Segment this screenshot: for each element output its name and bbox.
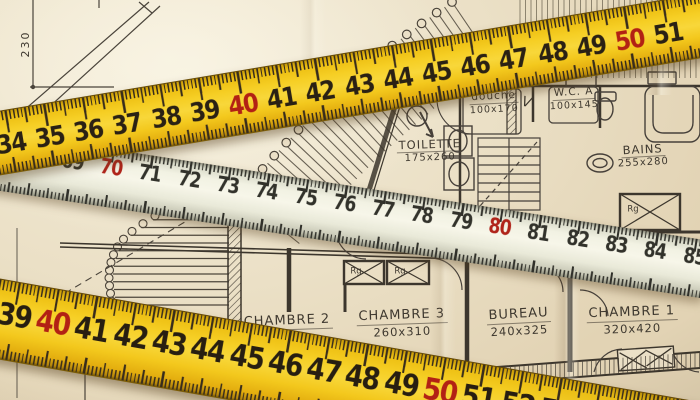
plan-line (128, 227, 136, 235)
plan-line (107, 289, 115, 297)
ruler-number-35: 35 (33, 121, 67, 155)
radiator-label: Rg (350, 268, 361, 277)
room-label-chambre3: CHAMBRE 3 260x310 (356, 307, 447, 339)
ruler-number-37: 37 (110, 108, 144, 142)
plan-line (432, 8, 441, 17)
ruler-number-38: 38 (149, 101, 183, 135)
mini-stair (478, 138, 540, 210)
ruler-number-84: 84 (642, 237, 668, 264)
plan-line (110, 251, 118, 259)
ruler-number-51: 51 (652, 17, 686, 51)
ruler-number-42: 42 (110, 317, 150, 357)
ruler-number-50: 50 (613, 23, 647, 57)
ruler-number-74: 74 (254, 178, 280, 205)
ruler-number-40: 40 (226, 88, 260, 122)
ruler-number-77: 77 (370, 195, 396, 222)
radiator-label: Rg (627, 206, 638, 215)
plan-line (417, 19, 426, 28)
window-symbol (617, 346, 674, 371)
room-label-toilette: TOILETTE 175x260 (396, 137, 463, 165)
ruler-number-41: 41 (265, 82, 299, 116)
plan-line (282, 138, 291, 147)
room-label-bureau: BUREAU 240x325 (486, 306, 552, 338)
ruler-number-46: 46 (265, 344, 305, 384)
plan-line (106, 282, 114, 290)
plan-line (315, 113, 368, 167)
ruler-number-79: 79 (448, 207, 474, 234)
ruler-number-39: 39 (188, 95, 222, 129)
room-name: CHAMBRE 3 (356, 307, 447, 326)
plan-line (448, 0, 457, 6)
plan-line (107, 258, 115, 266)
ruler-number-76: 76 (332, 190, 358, 217)
ruler-number-36: 36 (72, 114, 106, 148)
ruler-number-48: 48 (536, 36, 570, 70)
room-name: CHAMBRE 1 (586, 304, 677, 323)
ruler-number-44: 44 (188, 330, 228, 370)
plan-line (309, 119, 363, 173)
ruler-number-49: 49 (574, 30, 608, 64)
ruler-number-34: 34 (0, 127, 28, 161)
ruler-number-48: 48 (342, 358, 382, 398)
ruler-number-41: 41 (72, 310, 112, 350)
ruler-number-49: 49 (381, 365, 421, 400)
plan-line (297, 132, 352, 185)
ruler-number-45: 45 (420, 56, 454, 90)
ruler-number-81: 81 (526, 219, 552, 246)
radiator-label: Rg (394, 268, 405, 277)
ruler-number-42: 42 (304, 75, 338, 109)
plan-line (402, 30, 411, 39)
ruler-number-50: 50 (420, 371, 460, 400)
ruler-number-80: 80 (487, 213, 513, 240)
ruler-number-47: 47 (304, 351, 344, 391)
ruler-number-73: 73 (215, 172, 241, 199)
plan-line (270, 151, 279, 160)
ruler-number-43: 43 (149, 324, 189, 364)
ruler-number-85: 85 (681, 243, 700, 270)
room-size: 240x325 (487, 323, 552, 338)
ruler-number-40: 40 (33, 303, 73, 343)
plan-line (139, 220, 147, 228)
ruler-number-45: 45 (226, 337, 266, 377)
ruler-number-71: 71 (137, 160, 163, 187)
plan-line (294, 125, 303, 134)
ruler-number-75: 75 (293, 184, 319, 211)
plan-line (105, 274, 113, 282)
room-label-wc: W.C. A 100x145 (549, 86, 599, 113)
photo-rulers-on-floor-plan: douche 100x170 W.C. A 100x145 BAINS 255x… (0, 0, 700, 400)
ruler-number-47: 47 (497, 43, 531, 77)
ruler-number-46: 46 (458, 49, 492, 83)
ruler-number-78: 78 (409, 201, 435, 228)
ruler-number-44: 44 (381, 62, 415, 96)
ruler-number-82: 82 (565, 225, 591, 252)
ruler-number-39: 39 (0, 296, 34, 336)
ruler-number-72: 72 (176, 166, 202, 193)
plan-line (303, 126, 357, 179)
dimension-230: 230 (20, 31, 32, 58)
ruler-number-83: 83 (603, 231, 629, 258)
room-label-bains: BAINS 255x280 (617, 142, 669, 170)
ruler-number-43: 43 (342, 69, 376, 103)
room-label-chambre1: CHAMBRE 1 320x420 (586, 304, 677, 336)
plan-line (120, 235, 128, 243)
